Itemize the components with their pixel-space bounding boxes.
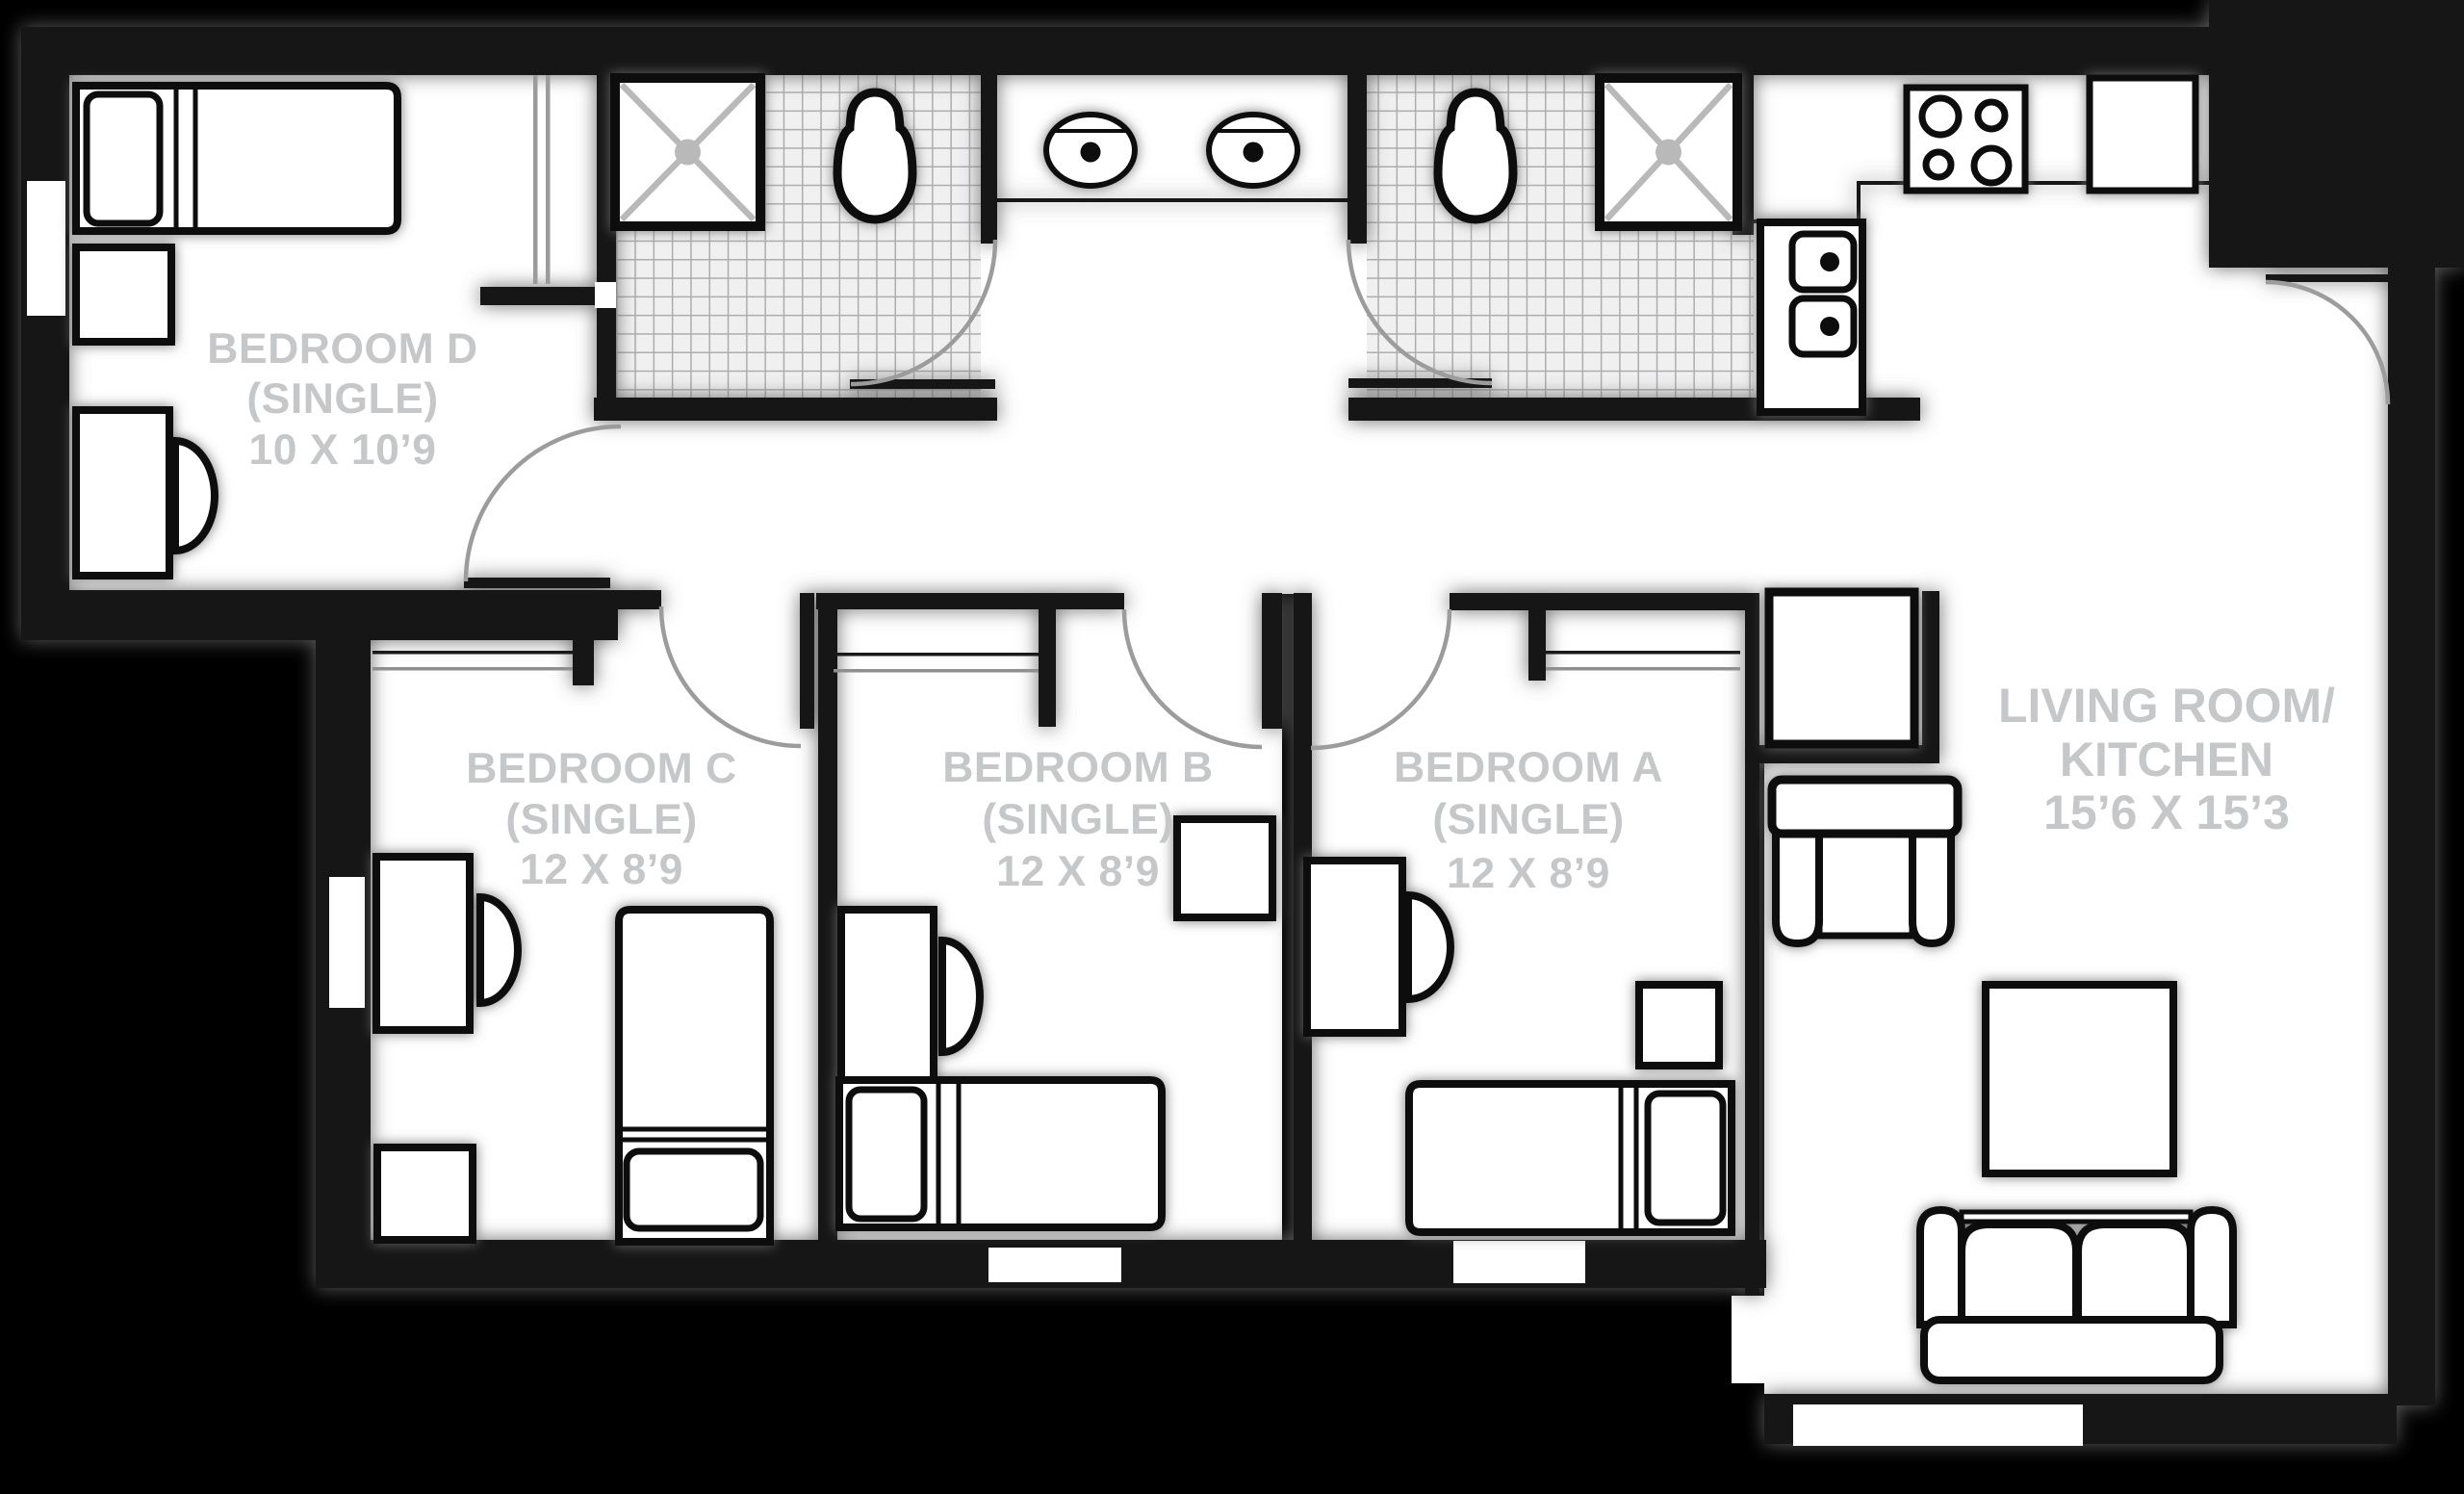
svg-text:LIVING ROOM/: LIVING ROOM/	[1998, 679, 2335, 733]
svg-text:(SINGLE): (SINGLE)	[505, 796, 697, 843]
svg-text:12 X 8’9: 12 X 8’9	[1447, 850, 1610, 897]
svg-text:BEDROOM C: BEDROOM C	[466, 745, 736, 792]
svg-text:BEDROOM B: BEDROOM B	[942, 744, 1213, 791]
svg-text:(SINGLE): (SINGLE)	[1432, 796, 1624, 843]
svg-text:15’6 X 15’3: 15’6 X 15’3	[2043, 786, 2290, 839]
svg-text:(SINGLE): (SINGLE)	[982, 796, 1173, 843]
svg-text:12 X 8’9: 12 X 8’9	[520, 846, 683, 893]
svg-text:KITCHEN: KITCHEN	[2060, 733, 2273, 786]
svg-text:BEDROOM D: BEDROOM D	[207, 325, 477, 373]
svg-text:BEDROOM A: BEDROOM A	[1394, 744, 1663, 791]
svg-text:(SINGLE): (SINGLE)	[246, 375, 438, 423]
svg-text:10 X 10’9: 10 X 10’9	[248, 426, 436, 474]
svg-text:12 X 8’9: 12 X 8’9	[996, 848, 1160, 895]
